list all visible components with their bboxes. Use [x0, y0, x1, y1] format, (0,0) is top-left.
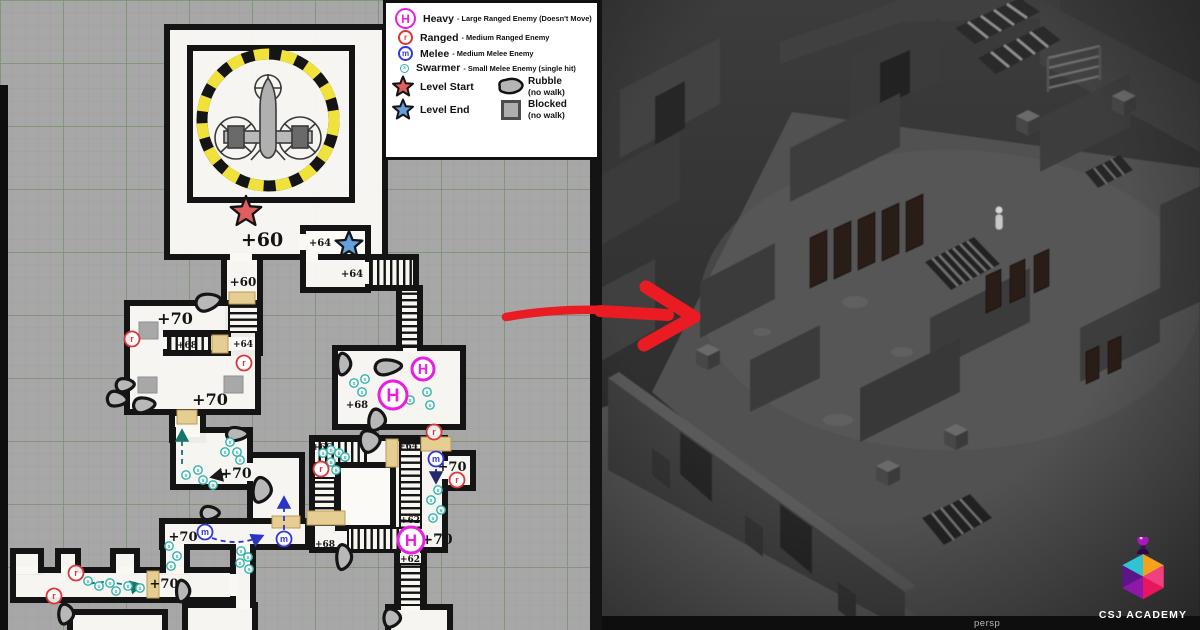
- rubble: [59, 604, 74, 624]
- swarmer-marker-letter: s: [201, 478, 204, 484]
- elevation-label: +62: [400, 555, 420, 565]
- legend-desc: - Large Ranged Enemy (Doesn't Move): [457, 14, 592, 23]
- swarmer-marker-letter: s: [321, 451, 324, 457]
- swarmer-marker-letter: s: [329, 460, 332, 466]
- elevation-label: +64: [398, 442, 418, 452]
- legend-item-swarmer: s Swarmer - Small Melee Enemy (single hi…: [390, 62, 591, 74]
- swarmer-marker-letter: s: [184, 473, 187, 479]
- elevation-label: +68: [177, 341, 197, 351]
- rubble: [337, 545, 352, 570]
- swarmer-marker-letter: s: [436, 488, 439, 494]
- legend-label: Heavy: [423, 13, 454, 25]
- rubble-icon: [494, 77, 528, 96]
- ranged-marker-letter: r: [319, 464, 323, 474]
- swarmer-marker-letter: s: [196, 468, 199, 474]
- elevation-label: +60: [230, 275, 257, 289]
- swarmer-marker-letter: s: [228, 440, 231, 446]
- swarmer-marker-letter: s: [329, 448, 332, 454]
- heavy-marker-letter: H: [386, 386, 399, 406]
- legend-item-rubble: Rubble (no walk): [494, 75, 591, 98]
- legend-label: Rubble: [528, 77, 565, 87]
- elevation-label: +70: [169, 530, 198, 545]
- blocked-square: [139, 322, 158, 339]
- brand-name: CSJ ACADEMY: [1083, 609, 1200, 621]
- swarmer-marker-letter: s: [126, 584, 129, 590]
- swarmer-marker-letter: s: [343, 455, 346, 461]
- swarmer-marker-letter: s: [428, 403, 431, 409]
- map-legend: H Heavy - Large Ranged Enemy (Doesn't Mo…: [383, 0, 600, 160]
- swarmer-marker-letter: s: [211, 483, 214, 489]
- legend-label: Blocked: [528, 100, 567, 110]
- elevation-label: +70: [421, 532, 452, 548]
- ranged-marker-letter: r: [455, 475, 459, 485]
- legend-item-ranged: r Ranged - Medium Ranged Enemy: [390, 30, 591, 45]
- map-left-edge: [0, 85, 8, 630]
- swarmer-marker-letter: s: [138, 586, 141, 592]
- csj-academy-logo: CSJ ACADEMY: [1083, 537, 1200, 621]
- legend-item-level-start: Level Start: [390, 75, 494, 98]
- ranged-enemy-icon: r: [398, 30, 413, 45]
- level-end-star-icon: [390, 98, 416, 122]
- heavy-marker-letter: H: [418, 362, 428, 378]
- door: [229, 292, 255, 304]
- legend-sublabel: (no walk): [528, 110, 567, 120]
- elevation-label: +64: [341, 269, 363, 280]
- swarmer-marker-letter: s: [247, 567, 250, 573]
- swarmer-marker-letter: s: [114, 589, 117, 595]
- legend-desc: - Small Melee Enemy (single hit): [463, 64, 576, 73]
- swarmer-marker-letter: s: [431, 516, 434, 522]
- elevation-label: +70: [220, 466, 251, 482]
- legend-label: Ranged: [420, 32, 459, 44]
- legend-item-blocked: Blocked (no walk): [494, 98, 591, 121]
- elevation-label: +68: [315, 540, 335, 550]
- level-design-breakdown: +60+64+64+60+70+68+64+70+68+66+64+70+70+…: [0, 0, 1200, 630]
- blockout-3d-viewport: persp: [600, 0, 1200, 630]
- door: [386, 439, 398, 467]
- legend-label: Level End: [420, 104, 470, 116]
- swarmer-marker-letter: s: [108, 581, 111, 587]
- swarmer-marker-letter: s: [235, 450, 238, 456]
- legend-item-heavy: H Heavy - Large Ranged Enemy (Doesn't Mo…: [390, 8, 591, 29]
- legend-sublabel: (no walk): [528, 87, 565, 97]
- legend-label: Melee: [420, 48, 449, 60]
- legend-desc: - Medium Melee Enemy: [452, 49, 533, 58]
- melee-enemy-icon: m: [398, 46, 413, 61]
- legend-item-level-end: Level End: [390, 98, 494, 121]
- level-start-star-icon: [390, 75, 416, 99]
- melee-marker-letter: m: [432, 454, 440, 464]
- swarmer-marker-letter: s: [175, 554, 178, 560]
- elevation-label: +70: [192, 390, 228, 409]
- swarmer-marker-letter: s: [408, 398, 411, 404]
- rubble: [201, 506, 219, 519]
- legend-label: Level Start: [420, 81, 474, 93]
- swarmer-marker-letter: s: [439, 508, 442, 514]
- swarmer-marker-letter: s: [360, 390, 363, 396]
- vignette: [600, 0, 1200, 630]
- door: [177, 410, 197, 424]
- swarmer-enemy-icon: s: [400, 64, 409, 73]
- elevation-label: +70: [157, 309, 193, 328]
- heavy-marker-letter: H: [405, 531, 417, 550]
- elevation-label: +70: [150, 577, 179, 592]
- rubble: [177, 580, 190, 602]
- ranged-marker-letter: r: [52, 591, 56, 601]
- camera-label: persp: [974, 618, 1000, 629]
- ranged-marker-letter: r: [432, 427, 436, 437]
- heavy-enemy-icon: H: [395, 8, 416, 29]
- swarmer-marker-letter: s: [334, 468, 337, 474]
- swarmer-marker-letter: s: [169, 564, 172, 570]
- blocked-icon: [494, 100, 528, 120]
- melee-marker-letter: m: [280, 534, 288, 544]
- door: [307, 511, 345, 525]
- swarmer-marker-letter: s: [97, 584, 100, 590]
- elevation-label: +64: [233, 340, 253, 350]
- elevation-label: +64: [309, 238, 331, 249]
- ranged-marker-letter: r: [242, 358, 246, 368]
- swarmer-marker-letter: s: [246, 555, 249, 561]
- door: [212, 335, 228, 353]
- swarmer-marker-letter: s: [239, 549, 242, 555]
- ranged-marker-letter: r: [74, 568, 78, 578]
- csj-cube-joystick-icon: [1114, 537, 1172, 603]
- rubble: [384, 609, 401, 627]
- swarmer-marker-letter: s: [352, 381, 355, 387]
- swarmer-marker-letter: s: [363, 377, 366, 383]
- swarmer-marker-letter: s: [337, 451, 340, 457]
- legend-item-melee: m Melee - Medium Melee Enemy: [390, 46, 591, 61]
- ranged-marker-letter: r: [130, 334, 134, 344]
- elevation-label: +60: [241, 229, 283, 251]
- legend-label: Swarmer: [416, 62, 460, 74]
- elevation-label: +62: [400, 516, 420, 526]
- legend-desc: - Medium Ranged Enemy: [462, 33, 550, 42]
- swarmer-marker-letter: s: [238, 458, 241, 464]
- swarmer-marker-letter: s: [429, 498, 432, 504]
- swarmer-marker-letter: s: [238, 561, 241, 567]
- elevation-label: +68: [346, 400, 368, 411]
- blocked-square: [138, 377, 157, 393]
- swarmer-marker-letter: s: [425, 390, 428, 396]
- swarmer-marker-letter: s: [223, 450, 226, 456]
- rubble: [338, 353, 351, 375]
- swarmer-marker-letter: s: [167, 544, 170, 550]
- melee-marker-letter: m: [201, 527, 209, 537]
- door: [272, 516, 300, 528]
- swarmer-marker-letter: s: [86, 579, 89, 585]
